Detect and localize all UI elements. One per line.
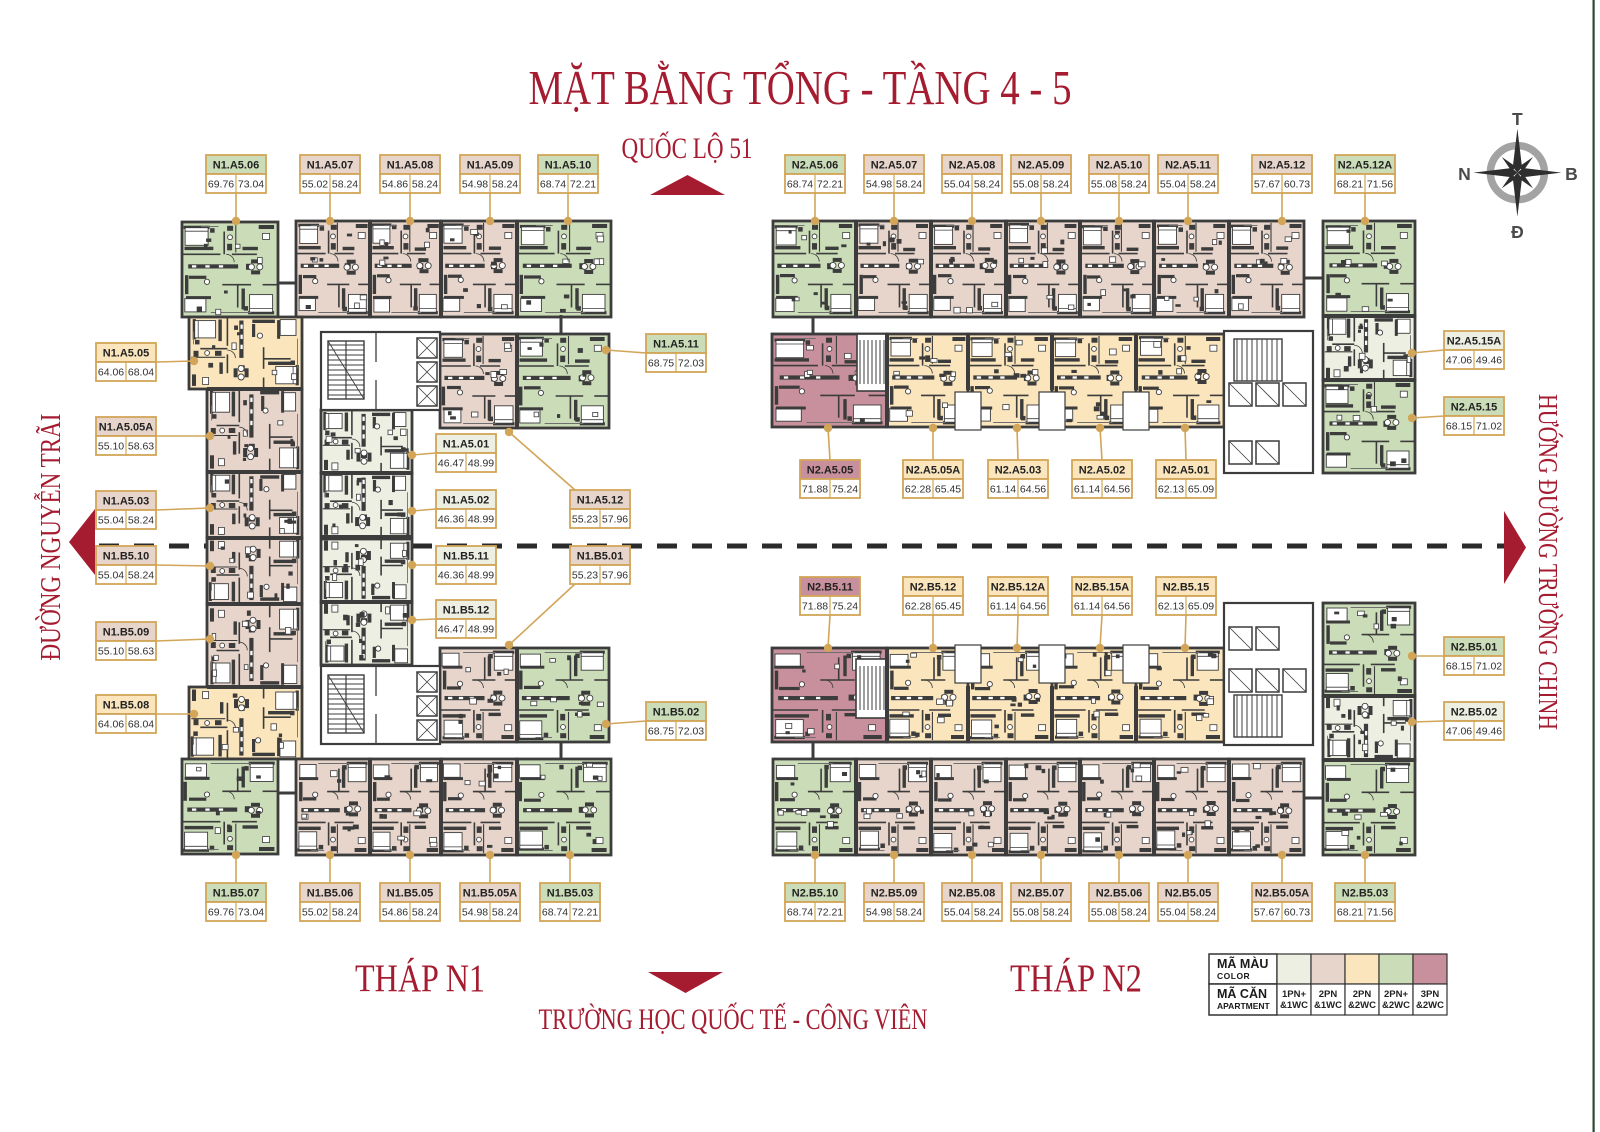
svg-text:46.47: 46.47 [438,624,464,636]
svg-text:N2.A5.11: N2.A5.11 [1165,160,1211,172]
svg-text:48.99: 48.99 [468,514,494,526]
svg-text:61.14: 61.14 [990,484,1016,496]
svg-text:55.04: 55.04 [98,515,124,527]
svg-text:1PN+: 1PN+ [1282,989,1306,1000]
svg-text:55.23: 55.23 [572,514,598,526]
svg-text:THÁP N2: THÁP N2 [1010,956,1142,1000]
svg-text:N2.A5.03: N2.A5.03 [995,465,1041,477]
svg-text:58.24: 58.24 [332,179,358,191]
svg-text:58.24: 58.24 [128,515,154,527]
svg-text:N2.A5.02: N2.A5.02 [1079,465,1125,477]
svg-text:N1.B5.02: N1.B5.02 [653,707,699,719]
svg-text:48.99: 48.99 [468,570,494,582]
svg-text:N1.A5.06: N1.A5.06 [213,160,259,172]
svg-text:55.02: 55.02 [302,907,328,919]
svg-text:N2.B5.03: N2.B5.03 [1342,888,1388,900]
svg-text:N1.B5.05A: N1.B5.05A [463,888,517,900]
svg-text:55.08: 55.08 [1013,179,1039,191]
svg-text:65.09: 65.09 [1188,484,1214,496]
svg-text:N1.A5.12: N1.A5.12 [577,495,623,507]
svg-text:N2.A5.09: N2.A5.09 [1018,160,1064,172]
svg-text:58.63: 58.63 [128,441,154,453]
svg-text:2PN: 2PN [1353,989,1372,1000]
svg-text:55.10: 55.10 [98,646,124,658]
svg-text:68.21: 68.21 [1337,179,1363,191]
svg-text:&2WC: &2WC [1382,1000,1410,1011]
svg-text:55.04: 55.04 [98,570,124,582]
svg-text:N2.B5.09: N2.B5.09 [871,888,917,900]
svg-text:COLOR: COLOR [1217,971,1250,981]
svg-text:MẶT BẰNG TỔNG - TẦNG 4 - 5: MẶT BẰNG TỔNG - TẦNG 4 - 5 [529,59,1072,115]
svg-text:HƯỚNG ĐƯỜNG TRƯỜNG CHINH: HƯỚNG ĐƯỜNG TRƯỜNG CHINH [1533,394,1563,730]
svg-text:58.24: 58.24 [1043,907,1069,919]
svg-text:68.75: 68.75 [648,726,674,738]
svg-text:N2.B5.12: N2.B5.12 [910,582,956,594]
svg-text:58.24: 58.24 [974,907,1000,919]
svg-text:46.36: 46.36 [438,514,464,526]
svg-text:69.76: 69.76 [208,907,234,919]
svg-text:54.98: 54.98 [462,907,488,919]
svg-text:N2.A5.06: N2.A5.06 [792,160,838,172]
svg-text:68.15: 68.15 [1446,421,1472,433]
svg-text:N1.A5.03: N1.A5.03 [103,496,149,508]
svg-text:N2.A5.15A: N2.A5.15A [1447,336,1501,348]
svg-text:71.56: 71.56 [1367,907,1393,919]
svg-text:58.24: 58.24 [1043,179,1069,191]
svg-text:46.36: 46.36 [438,570,464,582]
svg-text:2PN: 2PN [1319,989,1338,1000]
svg-text:N2.A5.08: N2.A5.08 [949,160,995,172]
svg-text:62.28: 62.28 [905,601,931,613]
svg-text:68.15: 68.15 [1446,661,1472,673]
svg-text:N2.B5.10: N2.B5.10 [792,888,838,900]
svg-text:46.47: 46.47 [438,458,464,470]
svg-text:MÃ CĂN: MÃ CĂN [1217,986,1267,1001]
svg-text:68.74: 68.74 [542,907,568,919]
svg-text:N1.A5.01: N1.A5.01 [443,439,489,451]
svg-text:N1.A5.08: N1.A5.08 [387,160,433,172]
svg-text:B: B [1565,164,1578,184]
svg-text:N2.B5.12A: N2.B5.12A [991,582,1045,594]
svg-text:57.67: 57.67 [1254,179,1280,191]
svg-text:68.74: 68.74 [540,179,566,191]
svg-text:N1.A5.10: N1.A5.10 [545,160,591,172]
svg-text:55.23: 55.23 [572,570,598,582]
svg-text:57.96: 57.96 [602,570,628,582]
svg-text:62.13: 62.13 [1158,484,1184,496]
svg-text:58.24: 58.24 [896,179,922,191]
svg-text:72.21: 72.21 [817,907,843,919]
svg-text:58.63: 58.63 [128,646,154,658]
svg-text:64.06: 64.06 [98,367,124,379]
svg-text:N1.A5.05: N1.A5.05 [103,348,149,360]
svg-text:TRƯỜNG HỌC QUỐC TẾ - CÔNG VIÊN: TRƯỜNG HỌC QUỐC TẾ - CÔNG VIÊN [539,1002,928,1036]
svg-text:N1.B5.08: N1.B5.08 [103,700,149,712]
svg-text:71.88: 71.88 [802,601,828,613]
svg-text:N2.A5.01: N2.A5.01 [1163,465,1209,477]
svg-text:69.76: 69.76 [208,179,234,191]
svg-text:MÃ MÀU: MÃ MÀU [1217,956,1268,971]
svg-text:55.08: 55.08 [1091,907,1117,919]
svg-text:71.56: 71.56 [1367,179,1393,191]
svg-text:N1.B5.10: N1.B5.10 [103,551,149,563]
svg-text:72.03: 72.03 [678,358,704,370]
svg-text:N1.A5.05A: N1.A5.05A [99,422,153,434]
svg-text:55.04: 55.04 [1160,179,1186,191]
svg-text:N2.A5.12A: N2.A5.12A [1338,160,1392,172]
svg-text:N2.B5.15A: N2.B5.15A [1075,582,1129,594]
svg-text:54.98: 54.98 [866,179,892,191]
svg-text:64.56: 64.56 [1020,601,1046,613]
svg-text:N: N [1458,164,1471,184]
svg-text:64.56: 64.56 [1020,484,1046,496]
svg-text:N2.A5.15: N2.A5.15 [1451,402,1497,414]
svg-text:N2.B5.01: N2.B5.01 [1451,642,1497,654]
svg-text:49.46: 49.46 [1476,726,1502,738]
svg-text:N2.A5.05A: N2.A5.05A [906,465,960,477]
svg-text:N1.A5.02: N1.A5.02 [443,495,489,507]
svg-text:62.13: 62.13 [1158,601,1184,613]
svg-text:58.24: 58.24 [412,179,438,191]
svg-text:58.24: 58.24 [128,570,154,582]
svg-text:58.24: 58.24 [492,179,518,191]
svg-text:48.99: 48.99 [468,624,494,636]
svg-text:72.21: 72.21 [817,179,843,191]
svg-text:61.14: 61.14 [990,601,1016,613]
svg-text:N2.A5.07: N2.A5.07 [871,160,917,172]
svg-text:61.14: 61.14 [1074,484,1100,496]
svg-text:68.21: 68.21 [1337,907,1363,919]
svg-text:&1WC: &1WC [1314,1000,1342,1011]
svg-text:58.24: 58.24 [412,907,438,919]
svg-text:N2.B5.02: N2.B5.02 [1451,707,1497,719]
svg-text:68.75: 68.75 [648,358,674,370]
svg-text:2PN+: 2PN+ [1384,989,1408,1000]
svg-text:62.28: 62.28 [905,484,931,496]
svg-text:N2.B5.05A: N2.B5.05A [1255,888,1309,900]
svg-text:58.24: 58.24 [1121,907,1147,919]
svg-text:N1.A5.11: N1.A5.11 [653,339,699,351]
svg-text:54.98: 54.98 [866,907,892,919]
svg-text:54.86: 54.86 [382,179,408,191]
svg-text:N2.B5.15: N2.B5.15 [1163,582,1209,594]
svg-text:71.02: 71.02 [1476,421,1502,433]
svg-text:71.88: 71.88 [802,484,828,496]
svg-text:N1.B5.12: N1.B5.12 [443,605,489,617]
svg-text:ĐƯỜNG NGUYỄN TRÃI: ĐƯỜNG NGUYỄN TRÃI [34,414,67,661]
svg-text:N2.B5.05: N2.B5.05 [1165,888,1211,900]
svg-text:65.45: 65.45 [935,601,961,613]
svg-text:N1.B5.09: N1.B5.09 [103,627,149,639]
svg-text:73.04: 73.04 [238,907,264,919]
svg-text:58.24: 58.24 [1121,179,1147,191]
svg-text:68.74: 68.74 [787,907,813,919]
svg-text:73.04: 73.04 [238,179,264,191]
svg-text:58.24: 58.24 [974,179,1000,191]
svg-text:N1.A5.09: N1.A5.09 [467,160,513,172]
svg-text:N1.B5.07: N1.B5.07 [213,888,259,900]
svg-text:68.04: 68.04 [128,719,154,731]
svg-text:55.08: 55.08 [1091,179,1117,191]
svg-text:&2WC: &2WC [1348,1000,1376,1011]
svg-text:N2.A5.10: N2.A5.10 [1096,160,1142,172]
svg-text:55.04: 55.04 [1160,907,1186,919]
svg-text:49.46: 49.46 [1476,355,1502,367]
svg-text:N2.A5.12: N2.A5.12 [1259,160,1305,172]
svg-text:N2.B5.08: N2.B5.08 [949,888,995,900]
svg-text:N1.A5.07: N1.A5.07 [307,160,353,172]
svg-text:71.02: 71.02 [1476,661,1502,673]
svg-text:48.99: 48.99 [468,458,494,470]
svg-text:T: T [1512,109,1523,129]
svg-text:N1.B5.11: N1.B5.11 [443,551,489,563]
svg-text:N1.B5.06: N1.B5.06 [307,888,353,900]
svg-text:&1WC: &1WC [1280,1000,1308,1011]
svg-text:57.67: 57.67 [1254,907,1280,919]
svg-text:58.24: 58.24 [1190,179,1216,191]
svg-text:64.06: 64.06 [98,719,124,731]
svg-text:72.03: 72.03 [678,726,704,738]
svg-text:55.08: 55.08 [1013,907,1039,919]
svg-text:58.24: 58.24 [1190,907,1216,919]
svg-text:54.86: 54.86 [382,907,408,919]
svg-text:55.10: 55.10 [98,441,124,453]
svg-text:68.74: 68.74 [787,179,813,191]
svg-text:61.14: 61.14 [1074,601,1100,613]
svg-text:Đ: Đ [1511,222,1524,242]
svg-text:THÁP N1: THÁP N1 [355,956,485,1000]
svg-text:58.24: 58.24 [896,907,922,919]
svg-text:47.06: 47.06 [1446,726,1472,738]
svg-text:60.73: 60.73 [1284,907,1310,919]
svg-text:75.24: 75.24 [832,601,858,613]
svg-text:58.24: 58.24 [332,907,358,919]
svg-text:58.24: 58.24 [492,907,518,919]
svg-text:68.04: 68.04 [128,367,154,379]
svg-text:72.21: 72.21 [570,179,596,191]
svg-text:65.45: 65.45 [935,484,961,496]
svg-text:72.21: 72.21 [572,907,598,919]
svg-text:APARTMENT: APARTMENT [1217,1001,1271,1011]
svg-text:3PN: 3PN [1421,989,1440,1000]
svg-text:57.96: 57.96 [602,514,628,526]
svg-text:60.73: 60.73 [1284,179,1310,191]
svg-text:55.04: 55.04 [944,907,970,919]
svg-text:47.06: 47.06 [1446,355,1472,367]
svg-text:N2.B5.07: N2.B5.07 [1018,888,1064,900]
svg-text:64.56: 64.56 [1104,484,1130,496]
svg-text:QUỐC LỘ 51: QUỐC LỘ 51 [622,131,753,165]
svg-text:64.56: 64.56 [1104,601,1130,613]
svg-text:54.98: 54.98 [462,179,488,191]
svg-text:55.04: 55.04 [944,179,970,191]
svg-text:55.02: 55.02 [302,179,328,191]
svg-text:75.24: 75.24 [832,484,858,496]
svg-text:N1.B5.01: N1.B5.01 [577,551,623,563]
svg-text:&2WC: &2WC [1416,1000,1444,1011]
svg-text:N2.A5.05: N2.A5.05 [807,465,853,477]
svg-text:N2.B5.06: N2.B5.06 [1096,888,1142,900]
svg-text:N1.B5.05: N1.B5.05 [387,888,433,900]
svg-text:65.09: 65.09 [1188,601,1214,613]
svg-text:N2.B5.11: N2.B5.11 [807,582,853,594]
svg-text:N1.B5.03: N1.B5.03 [547,888,593,900]
